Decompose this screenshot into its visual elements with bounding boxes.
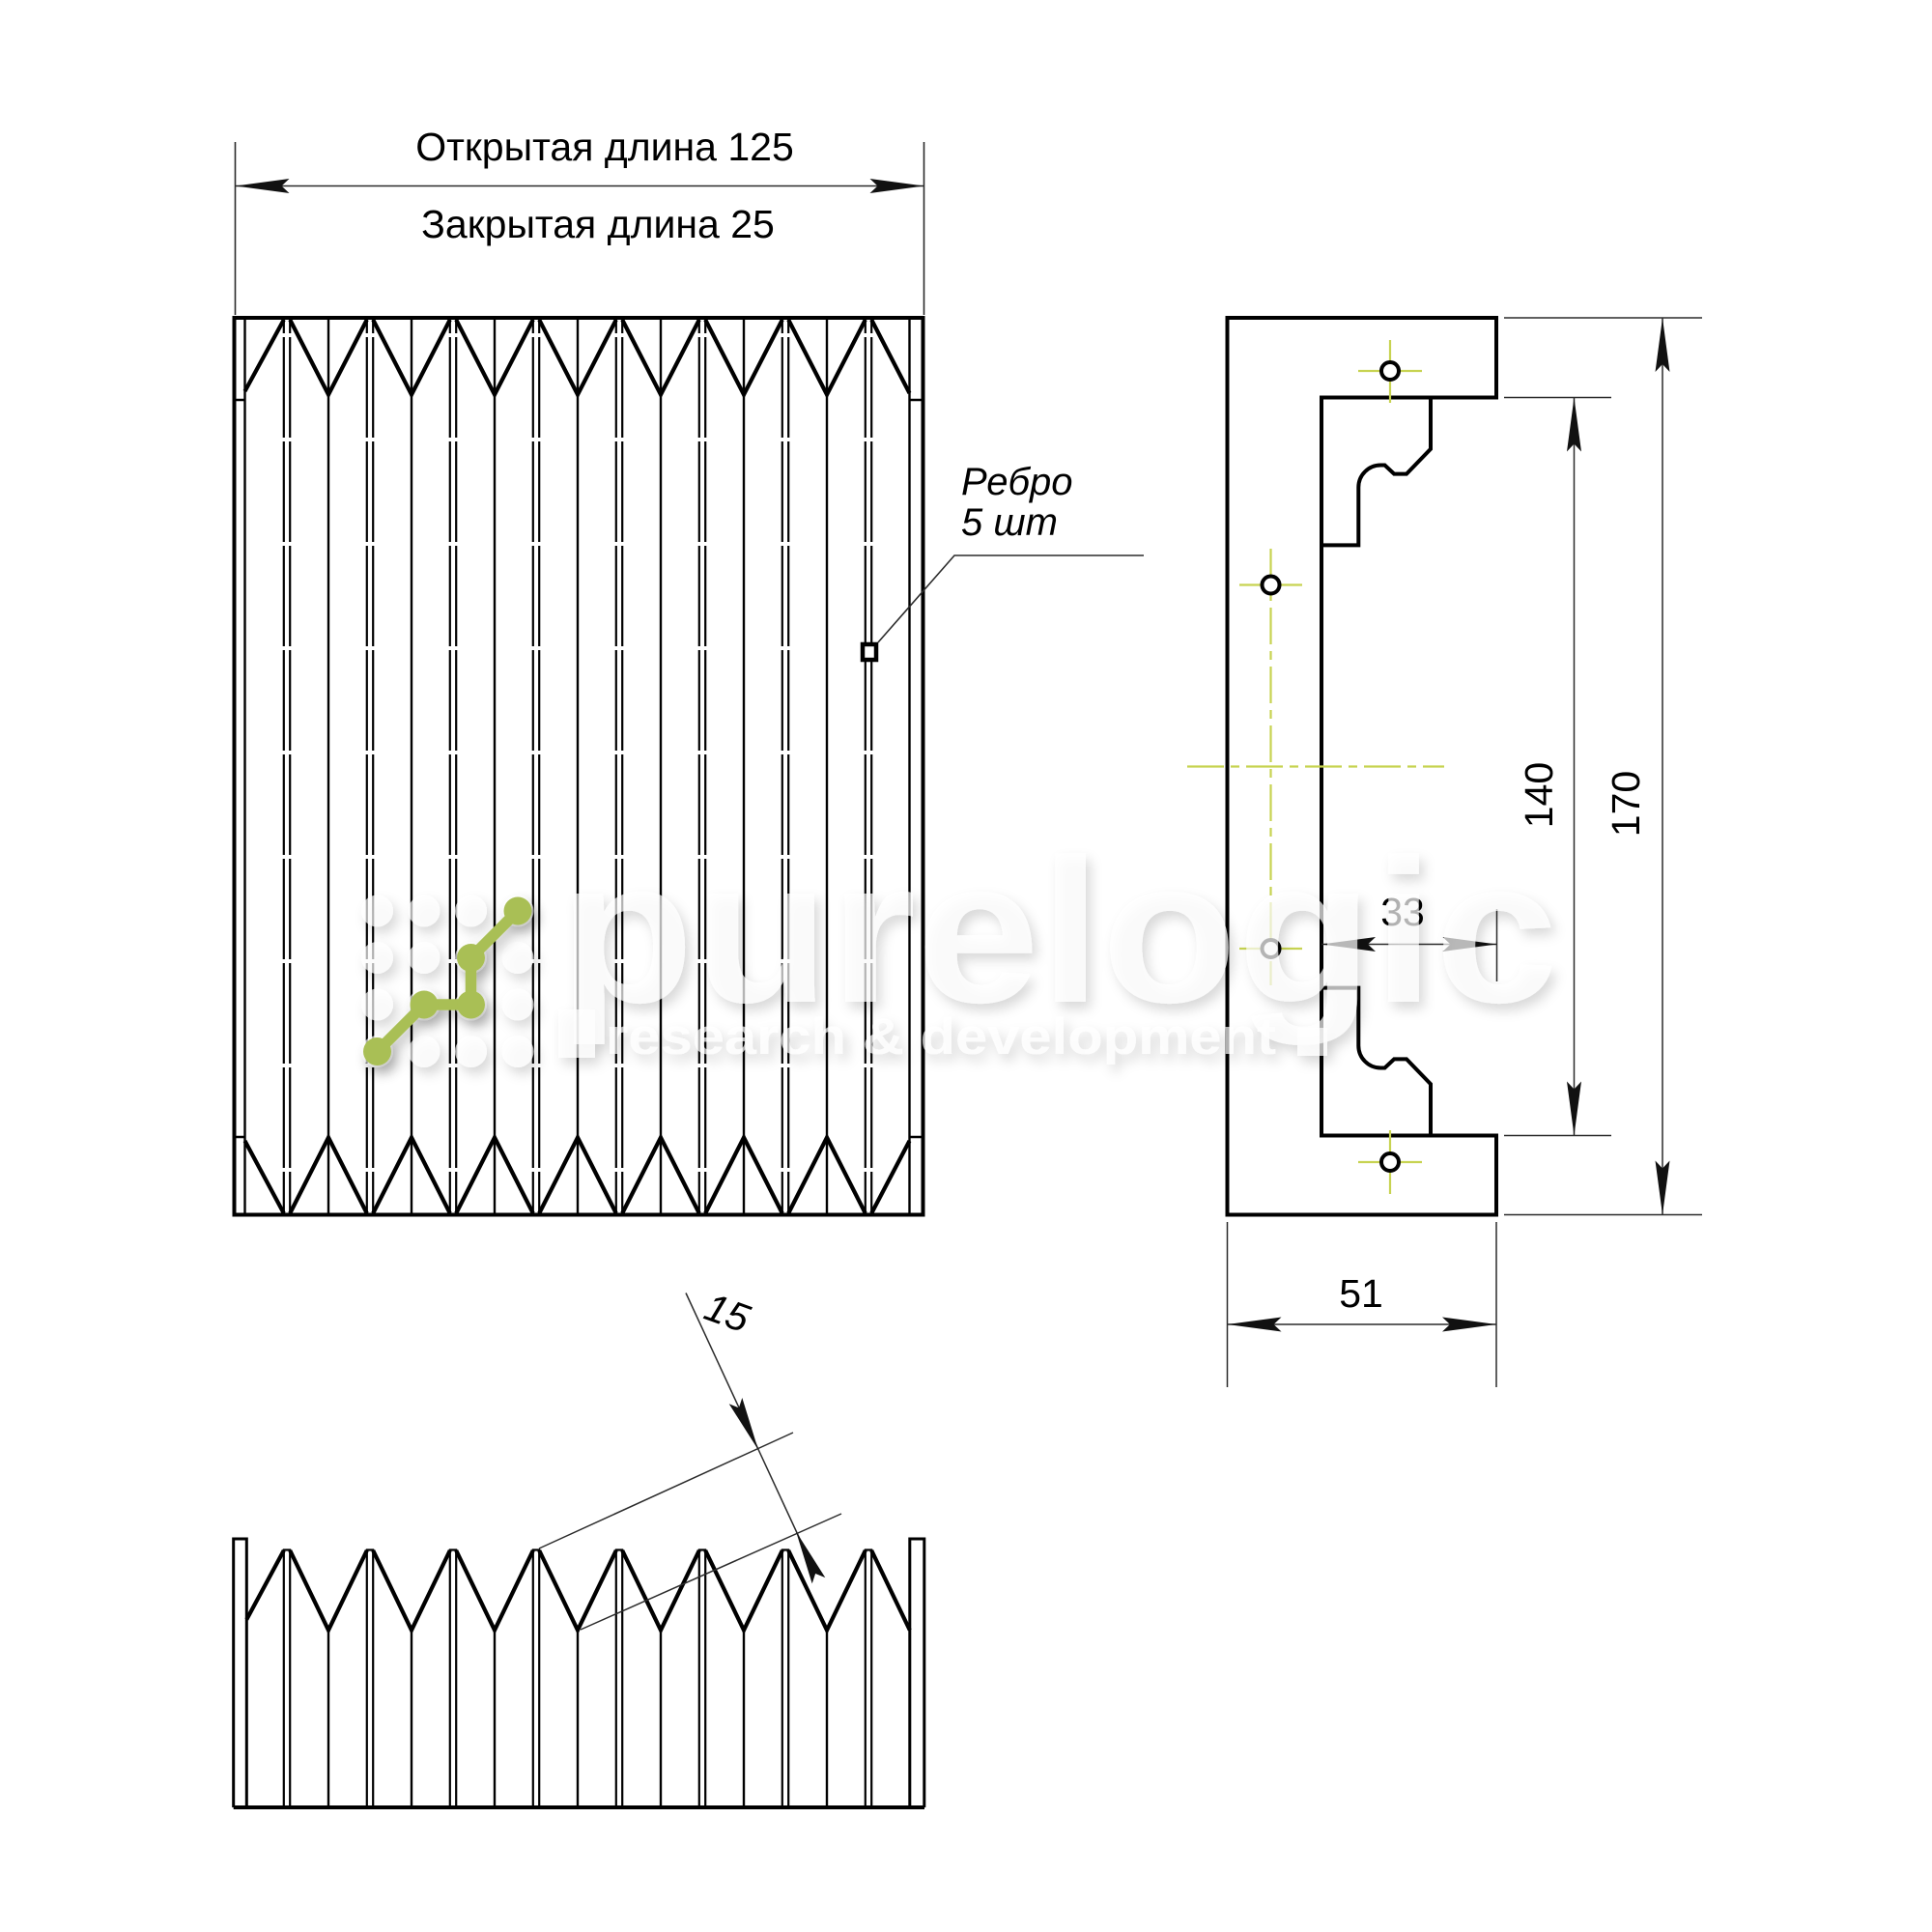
svg-text:5 шт: 5 шт	[961, 501, 1058, 544]
svg-text:170: 170	[1604, 771, 1648, 837]
svg-text:51: 51	[1339, 1271, 1383, 1316]
svg-text:research & development: research & development	[606, 1009, 1276, 1065]
svg-text:Открытая длина 125: Открытая длина 125	[415, 125, 794, 169]
svg-text:Ребро: Ребро	[961, 461, 1072, 503]
svg-text:Закрытая длина 25: Закрытая длина 25	[421, 202, 775, 246]
